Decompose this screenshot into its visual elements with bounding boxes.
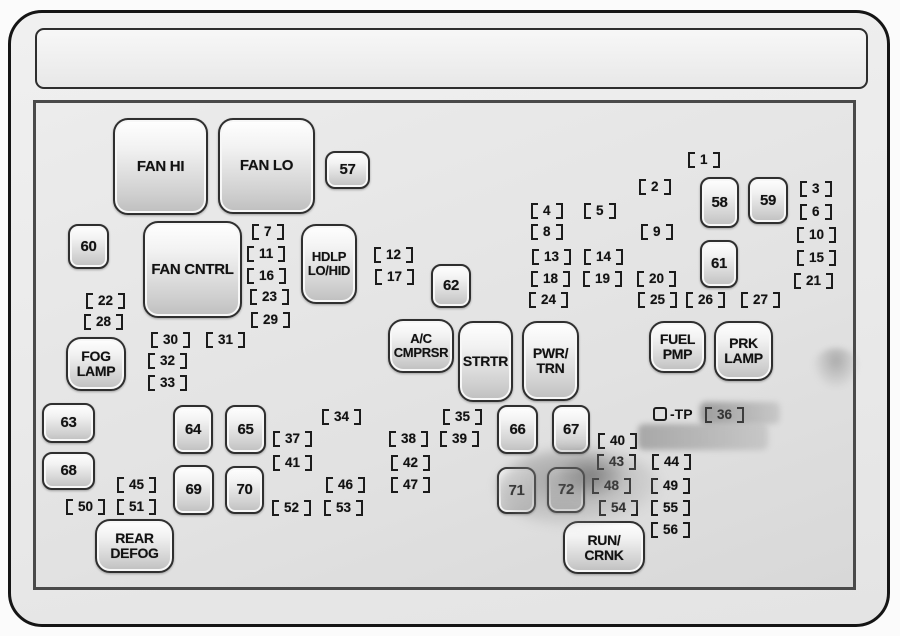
watermark-smudge (556, 452, 626, 498)
relay-fan-hi: FAN HI (113, 118, 208, 215)
fuse-21: 21 (794, 272, 833, 289)
fuse-38: 38 (389, 430, 428, 447)
fuse-19: 19 (583, 270, 622, 287)
relay-67: 67 (552, 405, 590, 454)
fuse-6: 6 (800, 203, 832, 220)
watermark-smudge (812, 348, 860, 390)
fuse-32: 32 (148, 352, 187, 369)
tp-stud-label: -TP (653, 406, 693, 422)
fuse-34: 34 (322, 408, 361, 425)
fuse-41: 41 (273, 454, 312, 471)
fuse-39: 39 (440, 430, 479, 447)
fuse-56: 56 (651, 521, 690, 538)
fuse-47: 47 (391, 476, 430, 493)
relay-68: 68 (42, 452, 95, 490)
fuse-42: 42 (391, 454, 430, 471)
fuse-45: 45 (117, 476, 156, 493)
fuse-37: 37 (273, 430, 312, 447)
relay-64: 64 (173, 405, 213, 454)
fuse-33: 33 (148, 374, 187, 391)
fuse-10: 10 (797, 226, 836, 243)
fuse-12: 12 (374, 246, 413, 263)
fuse-16: 16 (247, 267, 286, 284)
fuse-14: 14 (584, 248, 623, 265)
relay-69: 69 (173, 465, 214, 515)
tp-text: -TP (670, 406, 693, 422)
relay-66: 66 (497, 405, 538, 454)
relay-57: 57 (325, 151, 370, 189)
fuse-3: 3 (800, 180, 832, 197)
fuse-2: 2 (639, 178, 671, 195)
fuse-box-top-strip (35, 28, 868, 89)
fuse-9: 9 (641, 223, 673, 240)
fuse-18: 18 (531, 270, 570, 287)
relay-ac-cmprsr: A/C CMPRSR (388, 319, 454, 373)
fuse-28: 28 (84, 313, 123, 330)
relay-60: 60 (68, 224, 109, 269)
fuse-50: 50 (66, 498, 105, 515)
fuse-51: 51 (117, 498, 156, 515)
fuse-22: 22 (86, 292, 125, 309)
fuse-15: 15 (797, 249, 836, 266)
relay-61: 61 (700, 240, 738, 288)
watermark-smudge (638, 424, 768, 450)
relay-pwr-trn: PWR/ TRN (522, 321, 579, 401)
relay-70: 70 (225, 466, 264, 514)
fuse-23: 23 (250, 288, 289, 305)
relay-strtr: STRTR (458, 321, 513, 402)
fuse-30: 30 (151, 331, 190, 348)
fuse-26: 26 (686, 291, 725, 308)
fuse-8: 8 (531, 223, 563, 240)
fuse-35: 35 (443, 408, 482, 425)
relay-58: 58 (700, 177, 739, 228)
fuse-29: 29 (251, 311, 290, 328)
relay-rear-defog: REAR DEFOG (95, 519, 174, 573)
fuse-27: 27 (741, 291, 780, 308)
relay-fan-lo: FAN LO (218, 118, 315, 214)
fuse-20: 20 (637, 270, 676, 287)
relay-fuel-pmp: FUEL PMP (649, 321, 706, 373)
fuse-53: 53 (324, 499, 363, 516)
fuse-7: 7 (252, 223, 284, 240)
relay-63: 63 (42, 403, 95, 443)
fuse-1: 1 (688, 151, 720, 168)
relay-59: 59 (748, 177, 788, 224)
fuse-17: 17 (375, 268, 414, 285)
fuse-44: 44 (652, 453, 691, 470)
relay-fan-cntrl: FAN CNTRL (143, 221, 242, 318)
relay-fog-lamp: FOG LAMP (66, 337, 126, 391)
relay-65: 65 (225, 405, 266, 454)
fuse-46: 46 (326, 476, 365, 493)
fuse-11: 11 (247, 245, 285, 262)
fuse-4: 4 (531, 202, 563, 219)
fuse-5: 5 (584, 202, 616, 219)
fuse-52: 52 (272, 499, 311, 516)
relay-62: 62 (431, 264, 471, 308)
relay-prk-lamp: PRK LAMP (714, 321, 773, 381)
relay-run-crnk: RUN/ CRNK (563, 521, 645, 574)
fuse-13: 13 (532, 248, 571, 265)
relay-hdlp-lo-hid: HDLP LO/HID (301, 224, 357, 304)
fuse-25: 25 (638, 291, 677, 308)
fuse-31: 31 (206, 331, 245, 348)
fuse-24: 24 (529, 291, 568, 308)
fuse-box-diagram: FAN HI FAN LO FAN CNTRL HDLP LO/HID A/C … (0, 0, 900, 636)
stud-icon (653, 407, 667, 421)
fuse-40: 40 (598, 432, 637, 449)
watermark-smudge (700, 402, 780, 424)
